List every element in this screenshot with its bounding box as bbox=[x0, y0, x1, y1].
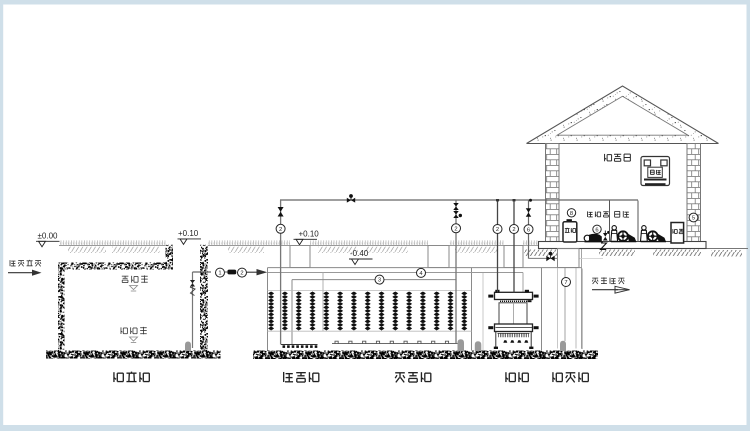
svg-text:2: 2 bbox=[279, 227, 282, 233]
svg-text:±0.00: ±0.00 bbox=[38, 232, 59, 241]
svg-text:-0.40: -0.40 bbox=[350, 249, 369, 258]
svg-text:6: 6 bbox=[595, 227, 598, 233]
svg-text:2: 2 bbox=[512, 227, 515, 233]
svg-text:7: 7 bbox=[564, 280, 567, 286]
svg-text:6: 6 bbox=[527, 227, 530, 233]
svg-text:+0.10: +0.10 bbox=[299, 230, 320, 239]
svg-text:2: 2 bbox=[454, 226, 457, 232]
svg-text:1: 1 bbox=[218, 271, 221, 277]
svg-text:8: 8 bbox=[570, 211, 573, 217]
svg-text:2: 2 bbox=[240, 271, 243, 277]
svg-text:5: 5 bbox=[692, 216, 695, 222]
svg-text:2: 2 bbox=[496, 227, 499, 233]
svg-text:+0.10: +0.10 bbox=[178, 229, 199, 238]
svg-text:3: 3 bbox=[378, 278, 381, 284]
